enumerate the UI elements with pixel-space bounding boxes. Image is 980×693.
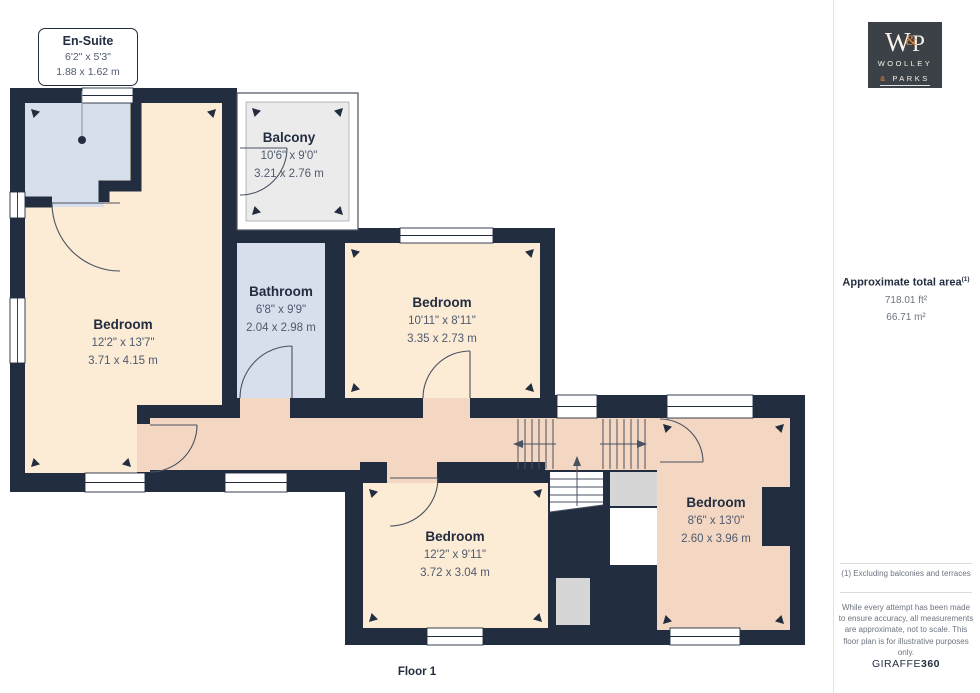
window xyxy=(10,192,25,218)
disclaimer-text: While every attempt has been made to ens… xyxy=(838,602,974,658)
giraffe360-brand: GIRAFFE360 xyxy=(836,658,976,670)
floor-label: Floor 1 xyxy=(357,666,477,678)
window xyxy=(427,628,483,645)
area-title: Approximate total area(1) xyxy=(836,276,976,289)
ensuite-callout-dims-m: 1.88 x 1.62 m xyxy=(41,65,135,80)
logo-name-line2: & PARKS xyxy=(880,74,929,86)
room-bedroom-middle xyxy=(345,243,540,398)
window xyxy=(82,88,133,103)
area-value-ft: 718.01 ft² xyxy=(836,295,976,306)
window xyxy=(85,473,145,492)
agency-logo: W&P WOOLLEY & PARKS xyxy=(868,22,942,88)
ensuite-callout: En-Suite 6'2" x 5'3" 1.88 x 1.62 m xyxy=(38,28,138,86)
door-threshold xyxy=(387,462,437,485)
logo-monogram: W&P xyxy=(868,22,942,58)
door-threshold xyxy=(423,398,470,420)
sidebar-rule xyxy=(840,592,972,593)
area-value-m: 66.71 m² xyxy=(836,312,976,323)
closet xyxy=(556,578,590,625)
sidebar-divider xyxy=(833,0,834,693)
window xyxy=(667,395,753,418)
floor-plan-page: En-Suite 6'2" x 5'3" 1.88 x 1.62 m Balco… xyxy=(0,0,980,693)
window xyxy=(400,228,493,243)
ensuite-callout-dims-ft: 6'2" x 5'3" xyxy=(41,50,135,65)
area-footnote: (1) Excluding balconies and terraces xyxy=(836,569,976,578)
window xyxy=(10,298,25,363)
sidebar-rule xyxy=(840,563,972,564)
logo-name-line1: WOOLLEY xyxy=(868,59,942,68)
door-threshold xyxy=(137,424,150,472)
room-bedroom-bottom xyxy=(363,483,548,628)
room-bathroom xyxy=(237,243,325,398)
window xyxy=(670,628,740,645)
stair-void xyxy=(610,508,657,565)
ensuite-callout-title: En-Suite xyxy=(41,32,135,50)
door-threshold xyxy=(240,398,290,420)
closet xyxy=(610,472,657,506)
area-footnote-marker: (1) xyxy=(962,276,970,283)
window xyxy=(225,473,287,492)
area-summary: Approximate total area(1) 718.01 ft² 66.… xyxy=(836,276,976,323)
window xyxy=(557,395,597,418)
